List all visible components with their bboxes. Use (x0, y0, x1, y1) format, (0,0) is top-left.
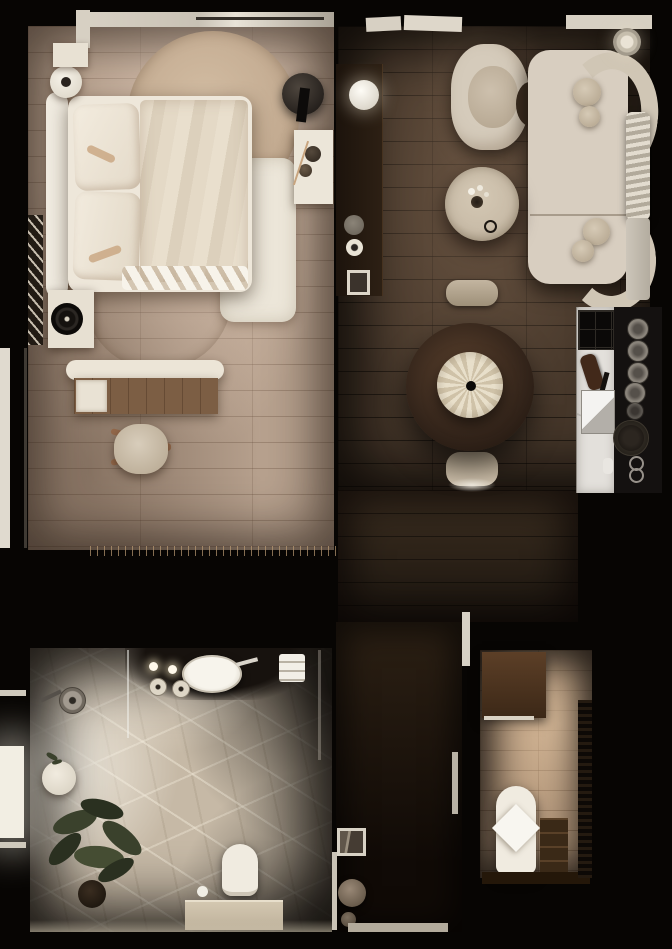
record-player-speaker (51, 303, 83, 335)
bathroom-window-frame-top (0, 690, 26, 696)
bathroom-vessel-sink (182, 655, 242, 693)
bedroom-entry-door (0, 348, 10, 548)
cooktop (613, 420, 649, 456)
utility-wood-cabinet (482, 652, 546, 718)
bedroom-curtain-rod (196, 17, 324, 20)
dining-chair-highlight (448, 478, 496, 492)
desk-top (66, 360, 224, 380)
utility-shelf-unit (540, 818, 568, 872)
coffee-table-flower-2 (477, 185, 483, 191)
utility-wall-sliver (462, 612, 470, 666)
radiator-bench (626, 218, 650, 300)
apartment-floor-plan (0, 0, 672, 949)
bathroom-skirting (30, 920, 332, 932)
hall-photo (340, 831, 363, 853)
coffee-table-flower-1 (468, 188, 475, 195)
rug-fringe (90, 546, 336, 556)
dining-chair-north (446, 280, 498, 306)
bathroom-window-light (0, 746, 24, 838)
pendant-lamp-center (466, 381, 476, 391)
console-teapot (305, 146, 321, 162)
living-photo-frame (347, 270, 370, 295)
bed-headboard (46, 92, 68, 298)
bathroom-wall-sliver (318, 650, 321, 760)
floor-lamp (613, 28, 641, 56)
living-window-sill-1 (366, 16, 402, 32)
rain-shower-head (59, 687, 86, 714)
hall-threshold (348, 923, 448, 932)
bedroom-door-frame (24, 348, 27, 548)
coffee-table-flower-3 (484, 192, 489, 197)
bathroom-cup (197, 886, 208, 897)
vanity-tray-2 (172, 680, 190, 698)
plate-stack-2 (627, 340, 649, 362)
kitchen-window-grid (578, 310, 614, 350)
towel-stack (279, 654, 305, 682)
living-window-sill-3 (566, 15, 652, 29)
bed-blanket (140, 100, 248, 282)
hall-pouf (338, 879, 366, 907)
vanity-candle-2 (168, 665, 177, 674)
drinking-glass-2 (629, 468, 644, 483)
kitchen-sink (581, 390, 615, 434)
bedside-cup (61, 77, 71, 87)
coffee-table-vase (471, 196, 483, 208)
plant-pot (78, 880, 106, 908)
sofa-bolster-1 (573, 78, 601, 106)
toilet (222, 844, 258, 896)
soap-dish (603, 458, 613, 474)
hall-wall-sliver-left (332, 852, 337, 930)
armchair-seat (468, 66, 518, 128)
hall-wall-sliver-right (452, 752, 458, 814)
louver-vent (578, 700, 592, 878)
vanity-candle-1 (149, 662, 158, 671)
vanity-tray-1 (149, 678, 167, 696)
sofa-bolster-2 (579, 106, 600, 127)
shower-glass-panel (127, 650, 129, 738)
living-window-sill-2 (404, 15, 462, 32)
bathroom-window-frame-bottom (0, 842, 26, 848)
utility-counter (482, 872, 590, 884)
plate-stack-1 (627, 318, 649, 340)
living-console-cup (346, 239, 363, 256)
sphere-lamp (349, 80, 379, 110)
bed-pillow-top (73, 103, 142, 191)
bedside-ledge (53, 43, 88, 67)
plate-stack-4 (624, 382, 646, 404)
decor-bowl (344, 215, 364, 235)
corridor-floor (338, 490, 578, 622)
bathroom-side-table (42, 761, 76, 795)
plate-stack-3 (627, 362, 649, 384)
plate-stack-5 (626, 402, 644, 420)
wall-ladder-rack (28, 215, 43, 345)
sofa-bolster-4 (572, 240, 594, 262)
bed-knit-throw (122, 266, 248, 290)
desk-chair-seat (114, 424, 168, 474)
desk-drawer-unit (76, 380, 107, 412)
coffee-table-rings (484, 220, 497, 233)
utility-cabinet-edge (484, 716, 534, 720)
radiator-bench-throw (626, 112, 650, 220)
